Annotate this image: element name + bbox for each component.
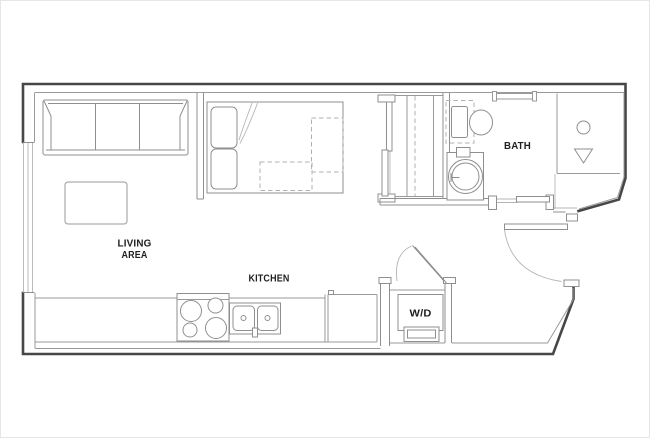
toilet-tank bbox=[452, 107, 468, 138]
wd-jamb-left bbox=[379, 278, 391, 284]
stove-burner-3 bbox=[183, 323, 197, 337]
shower-glass-cap-left bbox=[493, 92, 497, 102]
wd-label: W/D bbox=[410, 308, 432, 320]
shower-stall-lines bbox=[557, 94, 620, 174]
window bbox=[23, 142, 35, 293]
outer-wall-bottom bbox=[23, 286, 574, 354]
toilet-bowl bbox=[470, 110, 493, 135]
wd-right-wall bbox=[445, 283, 452, 343]
range-stove bbox=[177, 294, 229, 342]
coffee-table bbox=[65, 182, 127, 224]
entry-top-jamb bbox=[567, 214, 578, 221]
bath-label: BATH bbox=[504, 140, 531, 152]
toilet bbox=[446, 101, 493, 144]
closet-top-bottom-lines bbox=[395, 96, 443, 197]
sofa-outline bbox=[43, 100, 188, 155]
bed bbox=[207, 102, 343, 193]
kitchen-label: KITCHEN bbox=[249, 273, 290, 285]
sofa bbox=[43, 100, 188, 155]
wd-door-swing bbox=[396, 246, 411, 281]
closet-door-track-cap-top bbox=[378, 95, 395, 102]
bath-door-jamb-left bbox=[489, 196, 497, 210]
stove-burner-2 bbox=[208, 298, 223, 313]
sink-faucet bbox=[253, 328, 258, 337]
bath-door-panel bbox=[517, 197, 550, 203]
vanity-sink bbox=[447, 148, 484, 201]
floor-plan-drawing: LIVING AREA bbox=[0, 0, 650, 438]
wd-left-wall bbox=[381, 283, 390, 346]
vestibule-inner-line bbox=[452, 288, 573, 343]
wd-drawer-outer bbox=[404, 327, 439, 342]
living-area-label-line1: LIVING bbox=[118, 238, 152, 250]
living-area-label: LIVING AREA bbox=[118, 238, 152, 262]
living-area-label-line2: AREA bbox=[122, 249, 148, 261]
closet-sliding-doors bbox=[378, 95, 395, 202]
bed-pillow-top bbox=[211, 107, 237, 148]
kitchen-sink bbox=[230, 303, 281, 337]
bath-wall-right-stub bbox=[553, 208, 566, 212]
bath-door-track bbox=[497, 199, 518, 203]
washer-dryer: W/D bbox=[398, 295, 443, 342]
stove-burner-4 bbox=[206, 318, 227, 339]
shower-head-symbol bbox=[575, 149, 593, 163]
closet-rod-shelf-lines bbox=[407, 96, 434, 197]
closet-door-panel-upper bbox=[387, 102, 393, 151]
shower bbox=[557, 94, 620, 174]
wd-jamb-right bbox=[444, 278, 456, 284]
wd-door-panel bbox=[413, 246, 447, 284]
bed-pillow-bottom bbox=[211, 149, 237, 189]
vanity-faucet bbox=[457, 148, 471, 158]
entry-bottom-jamb bbox=[564, 280, 579, 287]
bathroom-sliding-door bbox=[489, 195, 554, 210]
vestibule-niche-lines bbox=[555, 174, 577, 208]
floor-plan-canvas: LIVING AREA bbox=[0, 0, 650, 438]
closet-shelving bbox=[395, 96, 443, 197]
shower-glass-panel bbox=[496, 94, 534, 100]
closet-door-panel-lower bbox=[382, 150, 388, 196]
partition-wall bbox=[197, 93, 204, 199]
counter-handle-tick bbox=[329, 291, 334, 295]
counter-dividers bbox=[325, 295, 377, 343]
stove-burner-1 bbox=[181, 301, 202, 322]
shower-glass-cap-right bbox=[533, 92, 537, 102]
entry-door-swing bbox=[505, 230, 562, 282]
shower-drain bbox=[577, 121, 590, 134]
entry-door-panel bbox=[505, 224, 568, 230]
partition-wall-lines bbox=[197, 93, 204, 199]
entry-door bbox=[505, 224, 580, 287]
